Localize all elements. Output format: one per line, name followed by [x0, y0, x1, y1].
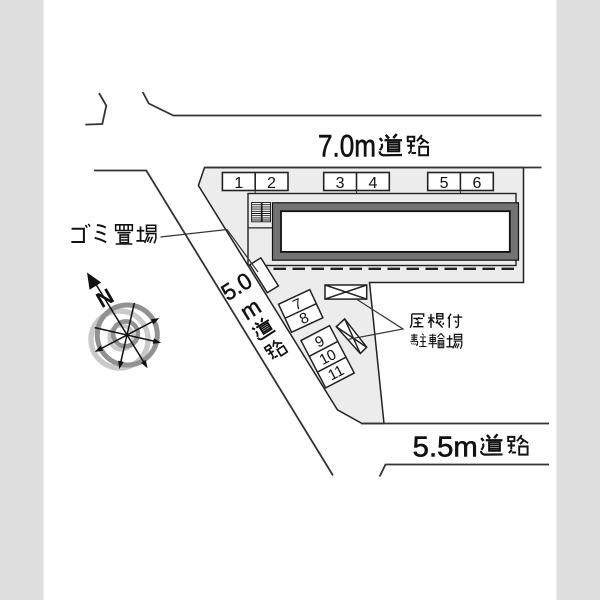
svg-text:2: 2	[267, 175, 276, 192]
svg-text:5: 5	[440, 175, 449, 192]
svg-text:1: 1	[234, 175, 243, 192]
svg-text:7.0m: 7.0m	[318, 128, 376, 164]
svg-text:5.5m: 5.5m	[413, 432, 478, 464]
svg-text:4: 4	[368, 175, 377, 192]
svg-text:6: 6	[472, 175, 481, 192]
svg-text:3: 3	[336, 175, 345, 192]
